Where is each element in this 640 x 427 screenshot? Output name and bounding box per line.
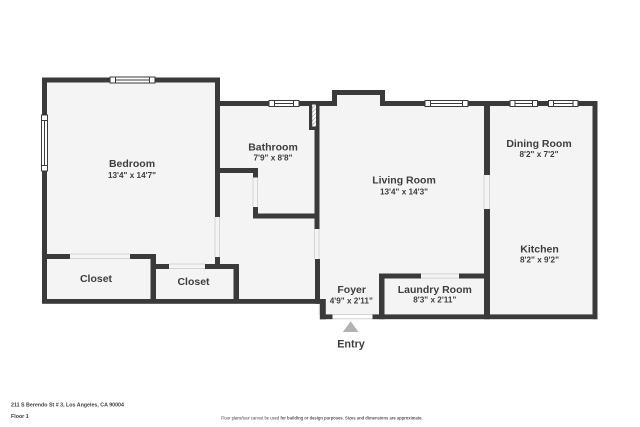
svg-text:Floor 1: Floor 1 <box>11 414 29 420</box>
svg-text:8'2" x 7'2": 8'2" x 7'2" <box>520 150 559 159</box>
svg-text:13'4" x 14'3": 13'4" x 14'3" <box>380 188 428 197</box>
svg-text:211 S Berendo St # 3, Los Ange: 211 S Berendo St # 3, Los Angeles, CA 90… <box>11 403 124 409</box>
svg-text:8'3" x 2'11": 8'3" x 2'11" <box>413 295 456 304</box>
svg-text:Entry: Entry <box>337 339 365 351</box>
svg-text:13'4" x 14'7": 13'4" x 14'7" <box>108 171 156 180</box>
svg-text:Closet: Closet <box>80 273 113 285</box>
svg-text:4'9" x 2'11": 4'9" x 2'11" <box>330 297 373 306</box>
svg-text:Floor plans/tour cannot be use: Floor plans/tour cannot be used for buil… <box>221 415 423 420</box>
svg-text:Closet: Closet <box>177 276 210 288</box>
svg-text:7'9" x 8'8": 7'9" x 8'8" <box>254 154 293 163</box>
svg-text:Laundry Room: Laundry Room <box>398 284 472 296</box>
svg-text:Dining Room: Dining Room <box>506 138 571 150</box>
svg-text:Kitchen: Kitchen <box>520 244 559 256</box>
svg-text:Bedroom: Bedroom <box>109 158 155 170</box>
svg-text:Living Room: Living Room <box>372 175 436 187</box>
svg-text:Foyer: Foyer <box>337 284 366 296</box>
svg-text:Bathroom: Bathroom <box>248 142 298 154</box>
svg-text:8'2" x 9'2": 8'2" x 9'2" <box>520 256 559 265</box>
